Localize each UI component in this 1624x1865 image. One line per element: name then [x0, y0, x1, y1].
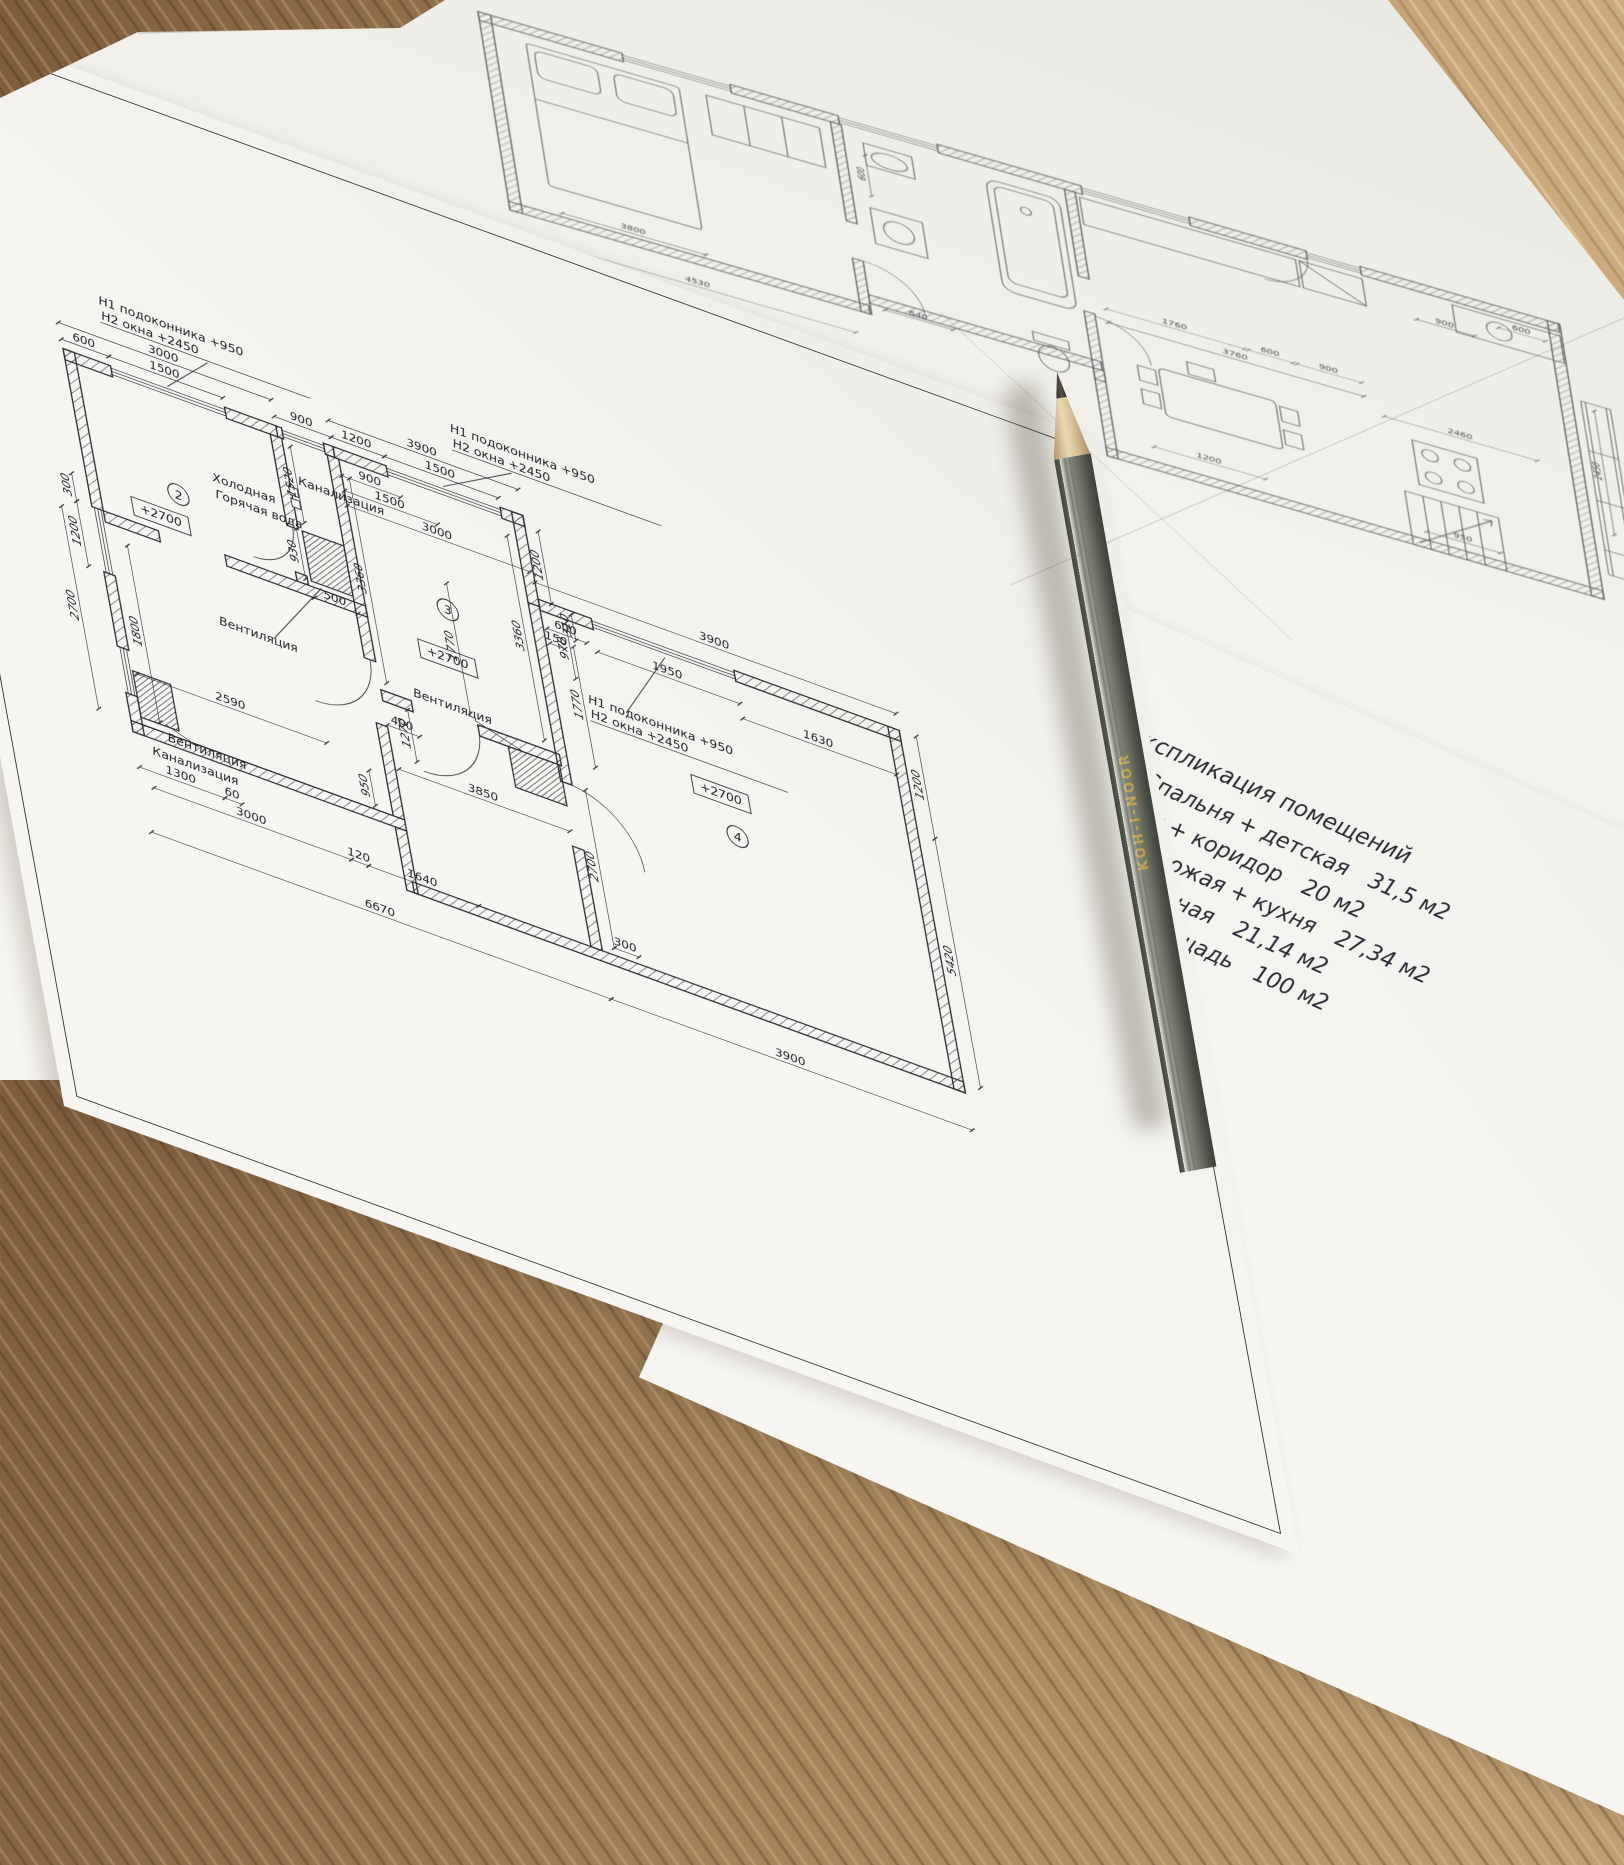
dimension-label: 3900	[774, 1045, 807, 1069]
dimension-label: 600	[1511, 324, 1532, 337]
dimension-label: 600	[71, 330, 96, 352]
dimension-label: 3760	[1222, 348, 1249, 363]
dimension-label: 1760	[1161, 317, 1188, 332]
bathtub	[985, 178, 1077, 311]
dimension-label: 3000	[235, 804, 268, 828]
pillow	[613, 73, 677, 117]
dimension-label: 3850	[467, 781, 500, 805]
utility-labels: Канализация Канализация Холодная Горячая…	[88, 397, 551, 901]
dimension-label: 1630	[802, 727, 835, 751]
window-note-room4: Н1 подоконника +950 Н2 окна +2450	[573, 624, 788, 792]
dimension-label: 970	[554, 634, 572, 661]
dimension-label: 6670	[364, 896, 397, 920]
pencil-sharpened-wood	[1043, 394, 1090, 460]
pillow	[534, 50, 601, 95]
sink	[863, 143, 915, 179]
dimension-label: 300	[58, 471, 76, 498]
dimension-label: 120	[346, 844, 371, 866]
dimension-label: 900	[1435, 317, 1456, 330]
dimension-label: 2460	[1447, 427, 1474, 442]
dimension-label: 900	[289, 409, 314, 431]
dining-table	[1158, 368, 1283, 450]
photo-scene: { "colors": { "ink": "#2c2c34", "paper":…	[0, 0, 1624, 1080]
dimension-label: 3900	[698, 628, 731, 652]
vent-label: Вентиляция	[412, 685, 493, 728]
dimension-label: 950	[356, 772, 374, 799]
dimension-label: 1770	[567, 687, 586, 722]
dimension-label: 2450	[1591, 461, 1605, 482]
room-number: 2	[173, 486, 183, 503]
dimension-label: 1950	[651, 658, 684, 682]
dimension-label: 950	[1453, 532, 1474, 545]
door-arcs	[245, 510, 645, 872]
stove	[1412, 440, 1484, 503]
dimension-label: 4530	[684, 275, 711, 290]
dimension-label: 2700	[63, 587, 82, 622]
bed	[526, 43, 702, 230]
dimension-label: 1200	[1196, 451, 1223, 466]
pencil-graphite-tip	[1052, 371, 1068, 399]
dimension-label: 2590	[214, 689, 247, 713]
dimension-label: 930	[284, 537, 302, 564]
dimension-label: 900	[1318, 363, 1339, 376]
vent-label: Вентиляция	[218, 613, 299, 656]
dimension-label: 300	[613, 934, 638, 956]
door-arc	[1095, 316, 1151, 365]
dimension-label: 1800	[126, 614, 145, 649]
kitchen-sink	[1485, 319, 1513, 344]
level-mark: +2700	[699, 779, 743, 808]
dimension-label: 3000	[421, 519, 454, 543]
dimension-label: 3900	[405, 435, 438, 459]
room-number: 4	[732, 828, 742, 845]
wardrobe	[706, 95, 826, 167]
washing-machine	[870, 208, 928, 259]
pencil-brand-text: KOH-I-NOOR	[1117, 751, 1153, 872]
dimension-label: 600	[1260, 346, 1281, 359]
dimension-label: 3360	[508, 618, 527, 653]
